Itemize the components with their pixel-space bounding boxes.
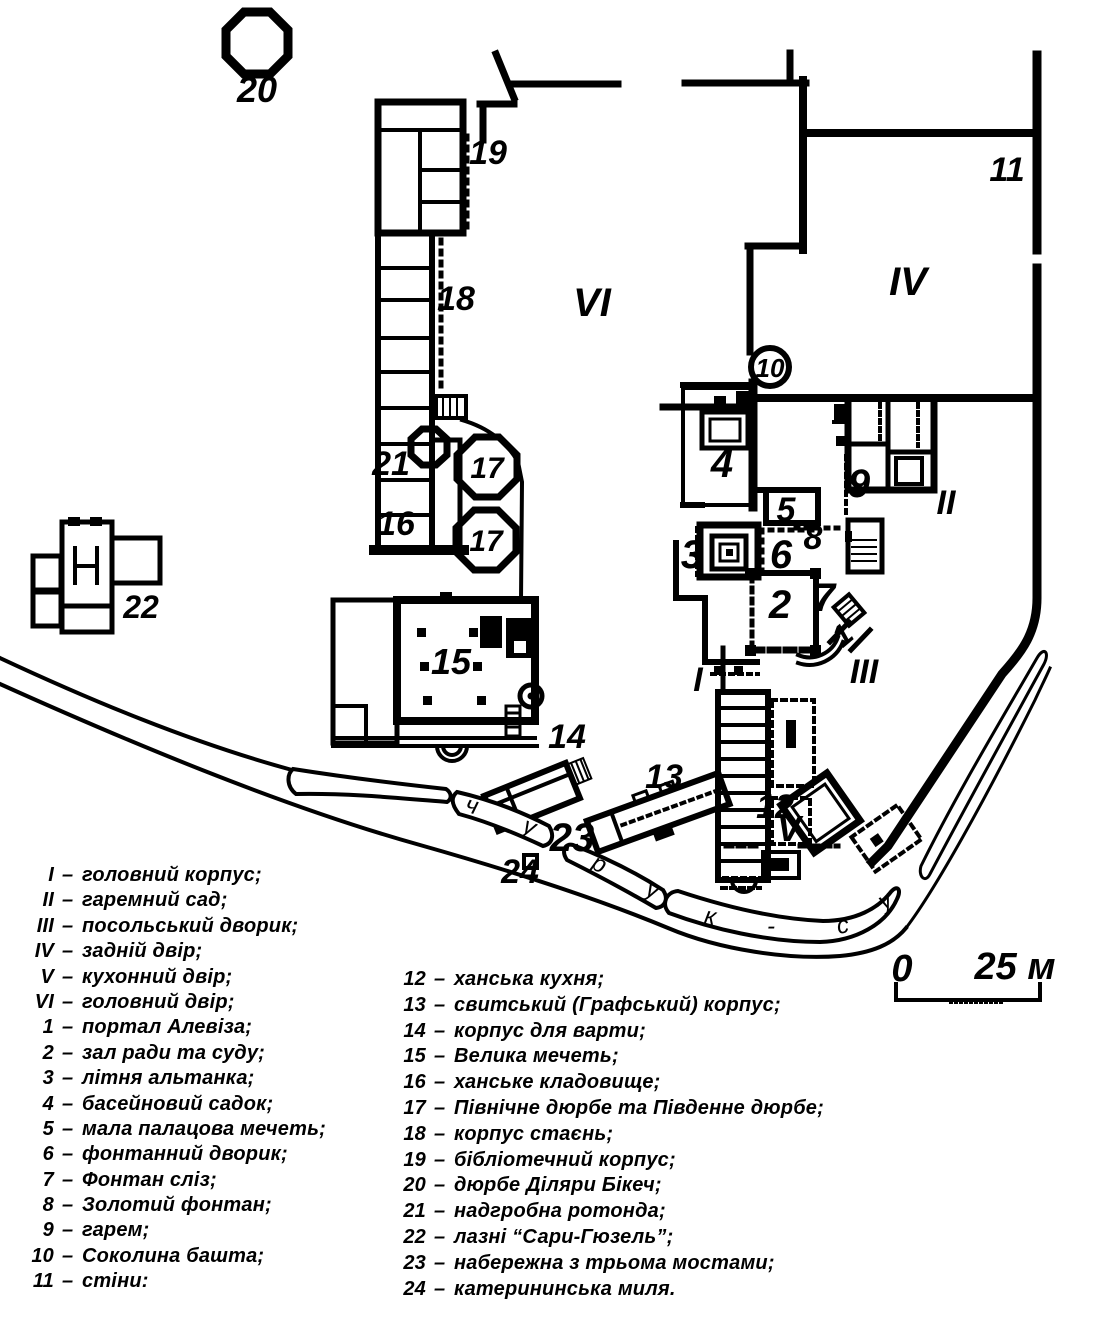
legend-item-number: 20 <box>382 1174 434 1197</box>
legend-item: 6 – фонтанний дворик; <box>10 1143 370 1168</box>
court-block <box>771 858 789 871</box>
inner-room <box>896 458 922 484</box>
legend-item-number: 19 <box>382 1149 434 1172</box>
legend-item-number: 15 <box>382 1045 434 1068</box>
map-label-II: II <box>937 484 957 522</box>
legend-item-dash: – <box>62 864 82 887</box>
legend-item-text: Велика мечеть; <box>454 1045 619 1068</box>
legend-item-number: 14 <box>382 1020 434 1043</box>
legend-item: 11 – стіни: <box>10 1270 370 1295</box>
bath-inner-walls <box>75 548 97 583</box>
falcon-tower: 10 <box>751 348 789 386</box>
legend-item: 22 – лазні “Сари-Гюзель”; <box>382 1226 902 1252</box>
legend-item-dash: – <box>62 991 82 1014</box>
legend-item: 19 – бібліотечний корпус; <box>382 1149 902 1175</box>
legend-item: 4 – басейновий садок; <box>10 1093 370 1118</box>
mihrab-apse <box>437 746 467 761</box>
legend-item-text: посольський дворик; <box>82 915 298 938</box>
pool-basin-inner <box>710 419 740 441</box>
legend-item-number: II <box>10 889 62 912</box>
map-label-IV: IV <box>889 260 930 304</box>
map-label-14: 14 <box>548 718 586 756</box>
legend-item-dash: – <box>434 1123 454 1146</box>
map-label-3: 3 <box>681 533 703 577</box>
map-label-10: 10 <box>756 353 785 383</box>
garden-pillar <box>714 396 726 408</box>
map-label-VI: VI <box>573 281 612 325</box>
annex-block <box>870 833 884 847</box>
legend-item-dash: – <box>434 1097 454 1120</box>
legend-item-dash: – <box>434 1200 454 1223</box>
legend-item-text: гарем; <box>82 1219 150 1242</box>
map-label-17-south: 17 <box>469 525 504 558</box>
legend-item-text: Золотий фонтан; <box>82 1194 272 1217</box>
legend-item-text: головний двір; <box>82 991 235 1014</box>
legend-item-text: літня альтанка; <box>82 1067 255 1090</box>
legend-item-text: дюрбе Діляри Бікеч; <box>454 1174 662 1197</box>
legend-item-text: свитський (Графський) корпус; <box>454 994 781 1017</box>
legend-item-dash: – <box>62 1194 82 1217</box>
legend-item-number: VI <box>10 991 62 1014</box>
legend-item-dash: – <box>62 940 82 963</box>
legend-item-dash: – <box>434 968 454 991</box>
legend-item: 18 – корпус стаєнь; <box>382 1123 902 1149</box>
legend-item-text: фонтанний дворик; <box>82 1143 288 1166</box>
legend-item-number: 22 <box>382 1226 434 1249</box>
stair-steps <box>443 398 457 416</box>
legend-item-number: 17 <box>382 1097 434 1120</box>
legend-item: VI – головний двір; <box>10 991 370 1016</box>
legend-item-dash: – <box>434 1020 454 1043</box>
stair-ladder <box>506 706 520 736</box>
legend-item-text: Соколина башта; <box>82 1245 264 1268</box>
legend-item-dash: – <box>62 1067 82 1090</box>
legend-item: 7 – Фонтан сліз; <box>10 1169 370 1194</box>
legend-item-text: лазні “Сари-Гюзель”; <box>454 1226 673 1249</box>
inner-wall <box>611 812 622 843</box>
legend-item-number: 7 <box>10 1169 62 1192</box>
cemetery-group: 21 17 17 16 <box>371 420 522 600</box>
main-corps: I <box>693 648 814 892</box>
legend-item: 5 – мала палацова мечеть; <box>10 1118 370 1143</box>
map-label-20: 20 <box>236 69 277 110</box>
legend-item-text: стіни: <box>82 1270 149 1293</box>
legend-item-number: 16 <box>382 1071 434 1094</box>
legend-item-text: гаремний сад; <box>82 889 228 912</box>
stables-building: 18 <box>374 233 475 550</box>
legend-item-dash: – <box>62 1016 82 1039</box>
legend-column-right: 12 – ханська кухня; 13 – свитський (Граф… <box>382 968 902 1303</box>
great-mosque: 15 <box>333 592 542 761</box>
legend-item: I – головний корпус; <box>10 864 370 889</box>
legend-item-number: 5 <box>10 1118 62 1141</box>
legend-item: 10 – Соколина башта; <box>10 1245 370 1270</box>
legend-item: III – посольський дворик; <box>10 915 370 940</box>
map-label-19: 19 <box>469 134 507 172</box>
legend-item-number: 18 <box>382 1123 434 1146</box>
minaret-core <box>528 693 535 700</box>
legend-item-dash: – <box>62 1219 82 1242</box>
map-label-16: 16 <box>377 505 416 543</box>
legend-item: 16 – ханське кладовище; <box>382 1071 902 1097</box>
legend-item: 1 – портал Алевіза; <box>10 1016 370 1041</box>
inner-block <box>786 720 796 748</box>
legend-item-number: 21 <box>382 1200 434 1223</box>
legend-item-text: задній двір; <box>82 940 202 963</box>
legend-item-number: 11 <box>10 1270 62 1293</box>
legend-item-text: кухонний двір; <box>82 966 232 989</box>
legend-item-number: I <box>10 864 62 887</box>
map-label-5: 5 <box>777 491 797 529</box>
legend-item-text: портал Алевіза; <box>82 1016 252 1039</box>
legend-item-number: 4 <box>10 1093 62 1116</box>
legend-item-text: катерининська миля. <box>454 1278 676 1301</box>
legend-item-dash: – <box>434 1226 454 1249</box>
legend-item-number: 9 <box>10 1219 62 1242</box>
legend-item-number: 12 <box>382 968 434 991</box>
map-label-2: 2 <box>768 583 791 627</box>
legend-item-number: 3 <box>10 1067 62 1090</box>
pavilion-fountain <box>726 549 733 556</box>
legend-item-dash: – <box>62 1042 82 1065</box>
retinue-corps: 13 <box>584 758 733 861</box>
gate-pillar <box>736 391 753 408</box>
legend-item-number: 2 <box>10 1042 62 1065</box>
river-bank-inner <box>0 658 292 770</box>
legend-item: 24 – катерининська миля. <box>382 1278 902 1304</box>
legend-item-dash: – <box>62 1169 82 1192</box>
east-stair-steps <box>852 540 876 561</box>
map-label-24: 24 <box>500 853 539 891</box>
legend-item-text: мала палацова мечеть; <box>82 1118 326 1141</box>
rear-court-walls <box>745 80 1035 398</box>
legend-item: 21 – надгробна ротонда; <box>382 1200 902 1226</box>
legend-item-number: 8 <box>10 1194 62 1217</box>
building-outline <box>378 233 432 548</box>
west-porches <box>834 404 846 446</box>
river-letter-6: - <box>767 913 775 940</box>
legend-item-text: ханське кладовище; <box>454 1071 661 1094</box>
dilara-bikech-durbe: 20 <box>226 12 288 110</box>
legend-item-number: 24 <box>382 1278 434 1301</box>
legend-item-dash: – <box>62 966 82 989</box>
legend-item-number: 23 <box>382 1252 434 1275</box>
legend-item-number: 13 <box>382 994 434 1017</box>
harem-building: 9 II <box>834 398 957 522</box>
legend-item-text: Фонтан сліз; <box>82 1169 217 1192</box>
legend-item-number: 10 <box>10 1245 62 1268</box>
legend-item: 2 – зал ради та суду; <box>10 1042 370 1067</box>
map-label-17-north: 17 <box>470 452 505 485</box>
legend-item: 14 – корпус для варти; <box>382 1020 902 1046</box>
legend-item-number: V <box>10 966 62 989</box>
legend-item: 13 – свитський (Графський) корпус; <box>382 994 902 1020</box>
map-label-21: 21 <box>371 445 410 483</box>
legend-item-dash: – <box>434 1174 454 1197</box>
legend-item-text: набережна з трьома мостами; <box>454 1252 775 1275</box>
library-building: 19 <box>378 102 507 233</box>
sary-guzel-baths: 22 <box>33 517 160 632</box>
legend-item-dash: – <box>62 1093 82 1116</box>
legend-item-number: III <box>10 915 62 938</box>
inner-walls <box>378 130 463 233</box>
legend-item: 17 – Північне дюрбе та Південне дюрбе; <box>382 1097 902 1123</box>
map-label-4: 4 <box>710 442 733 486</box>
legend-item: 12 – ханська кухня; <box>382 968 902 994</box>
map-label-13: 13 <box>645 758 683 796</box>
legend-item-dash: – <box>434 1045 454 1068</box>
legend-item: 23 – набережна з трьома мостами; <box>382 1252 902 1278</box>
map-label-15: 15 <box>431 641 472 682</box>
legend-item-number: 6 <box>10 1143 62 1166</box>
legend-item-text: басейновий садок; <box>82 1093 273 1116</box>
legend-item-text: корпус стаєнь; <box>454 1123 613 1146</box>
legend-item-dash: – <box>62 889 82 912</box>
legend-column-left: I – головний корпус; II – гаремний сад; … <box>10 864 370 1296</box>
map-label-III: III <box>850 653 880 691</box>
scale-bar: 0 25 м <box>891 946 1055 1003</box>
legend-item-dash: – <box>62 1270 82 1293</box>
palace-plan-page: 10 19 18 20 21 17 17 16 22 <box>0 0 1098 1317</box>
legend-item-text: зал ради та суду; <box>82 1042 265 1065</box>
legend-item: V – кухонний двір; <box>10 966 370 991</box>
map-label-I: I <box>693 661 704 699</box>
legend-item-dash: – <box>434 994 454 1017</box>
entrance-room <box>513 640 527 654</box>
legend-item-text: Північне дюрбе та Південне дюрбе; <box>454 1097 824 1120</box>
legend-item-dash: – <box>62 1143 82 1166</box>
legend-item: 9 – гарем; <box>10 1219 370 1244</box>
legend-item: 15 – Велика мечеть; <box>382 1045 902 1071</box>
map-label-9: 9 <box>848 462 871 506</box>
map-label-8: 8 <box>804 519 823 557</box>
legend-item-dash: – <box>62 1245 82 1268</box>
legend-item-text: надгробна ротонда; <box>454 1200 666 1223</box>
legend-item-dash: – <box>62 915 82 938</box>
legend-item-text: бібліотечний корпус; <box>454 1149 676 1172</box>
map-label-22: 22 <box>122 589 159 625</box>
legend-item: 3 – літня альтанка; <box>10 1067 370 1092</box>
legend-item-text: корпус для варти; <box>454 1020 646 1043</box>
scale-max: 25 м <box>974 946 1056 988</box>
legend-item-dash: – <box>434 1149 454 1172</box>
site-plan-map: 10 19 18 20 21 17 17 16 22 <box>0 0 1098 1012</box>
legend-item: IV – задній двір; <box>10 940 370 965</box>
legend-item-dash: – <box>434 1252 454 1275</box>
legend-item-number: 1 <box>10 1016 62 1039</box>
legend-item-dash: – <box>62 1118 82 1141</box>
legend-item: 20 – дюрбе Діляри Бікеч; <box>382 1174 902 1200</box>
legend-item-dash: – <box>434 1278 454 1301</box>
octagon-outline <box>226 12 288 74</box>
map-label-V: V <box>777 808 804 849</box>
map-label-11: 11 <box>989 151 1024 189</box>
legend-item-number: IV <box>10 940 62 963</box>
legend-item: 8 – Золотий фонтан; <box>10 1194 370 1219</box>
legend-item-text: ханська кухня; <box>454 968 604 991</box>
map-label-18: 18 <box>437 280 475 318</box>
map-label-7: 7 <box>813 576 837 620</box>
legend-item-text: головний корпус; <box>82 864 262 887</box>
legend-item: II – гаремний сад; <box>10 889 370 914</box>
legend-item-dash: – <box>434 1071 454 1094</box>
